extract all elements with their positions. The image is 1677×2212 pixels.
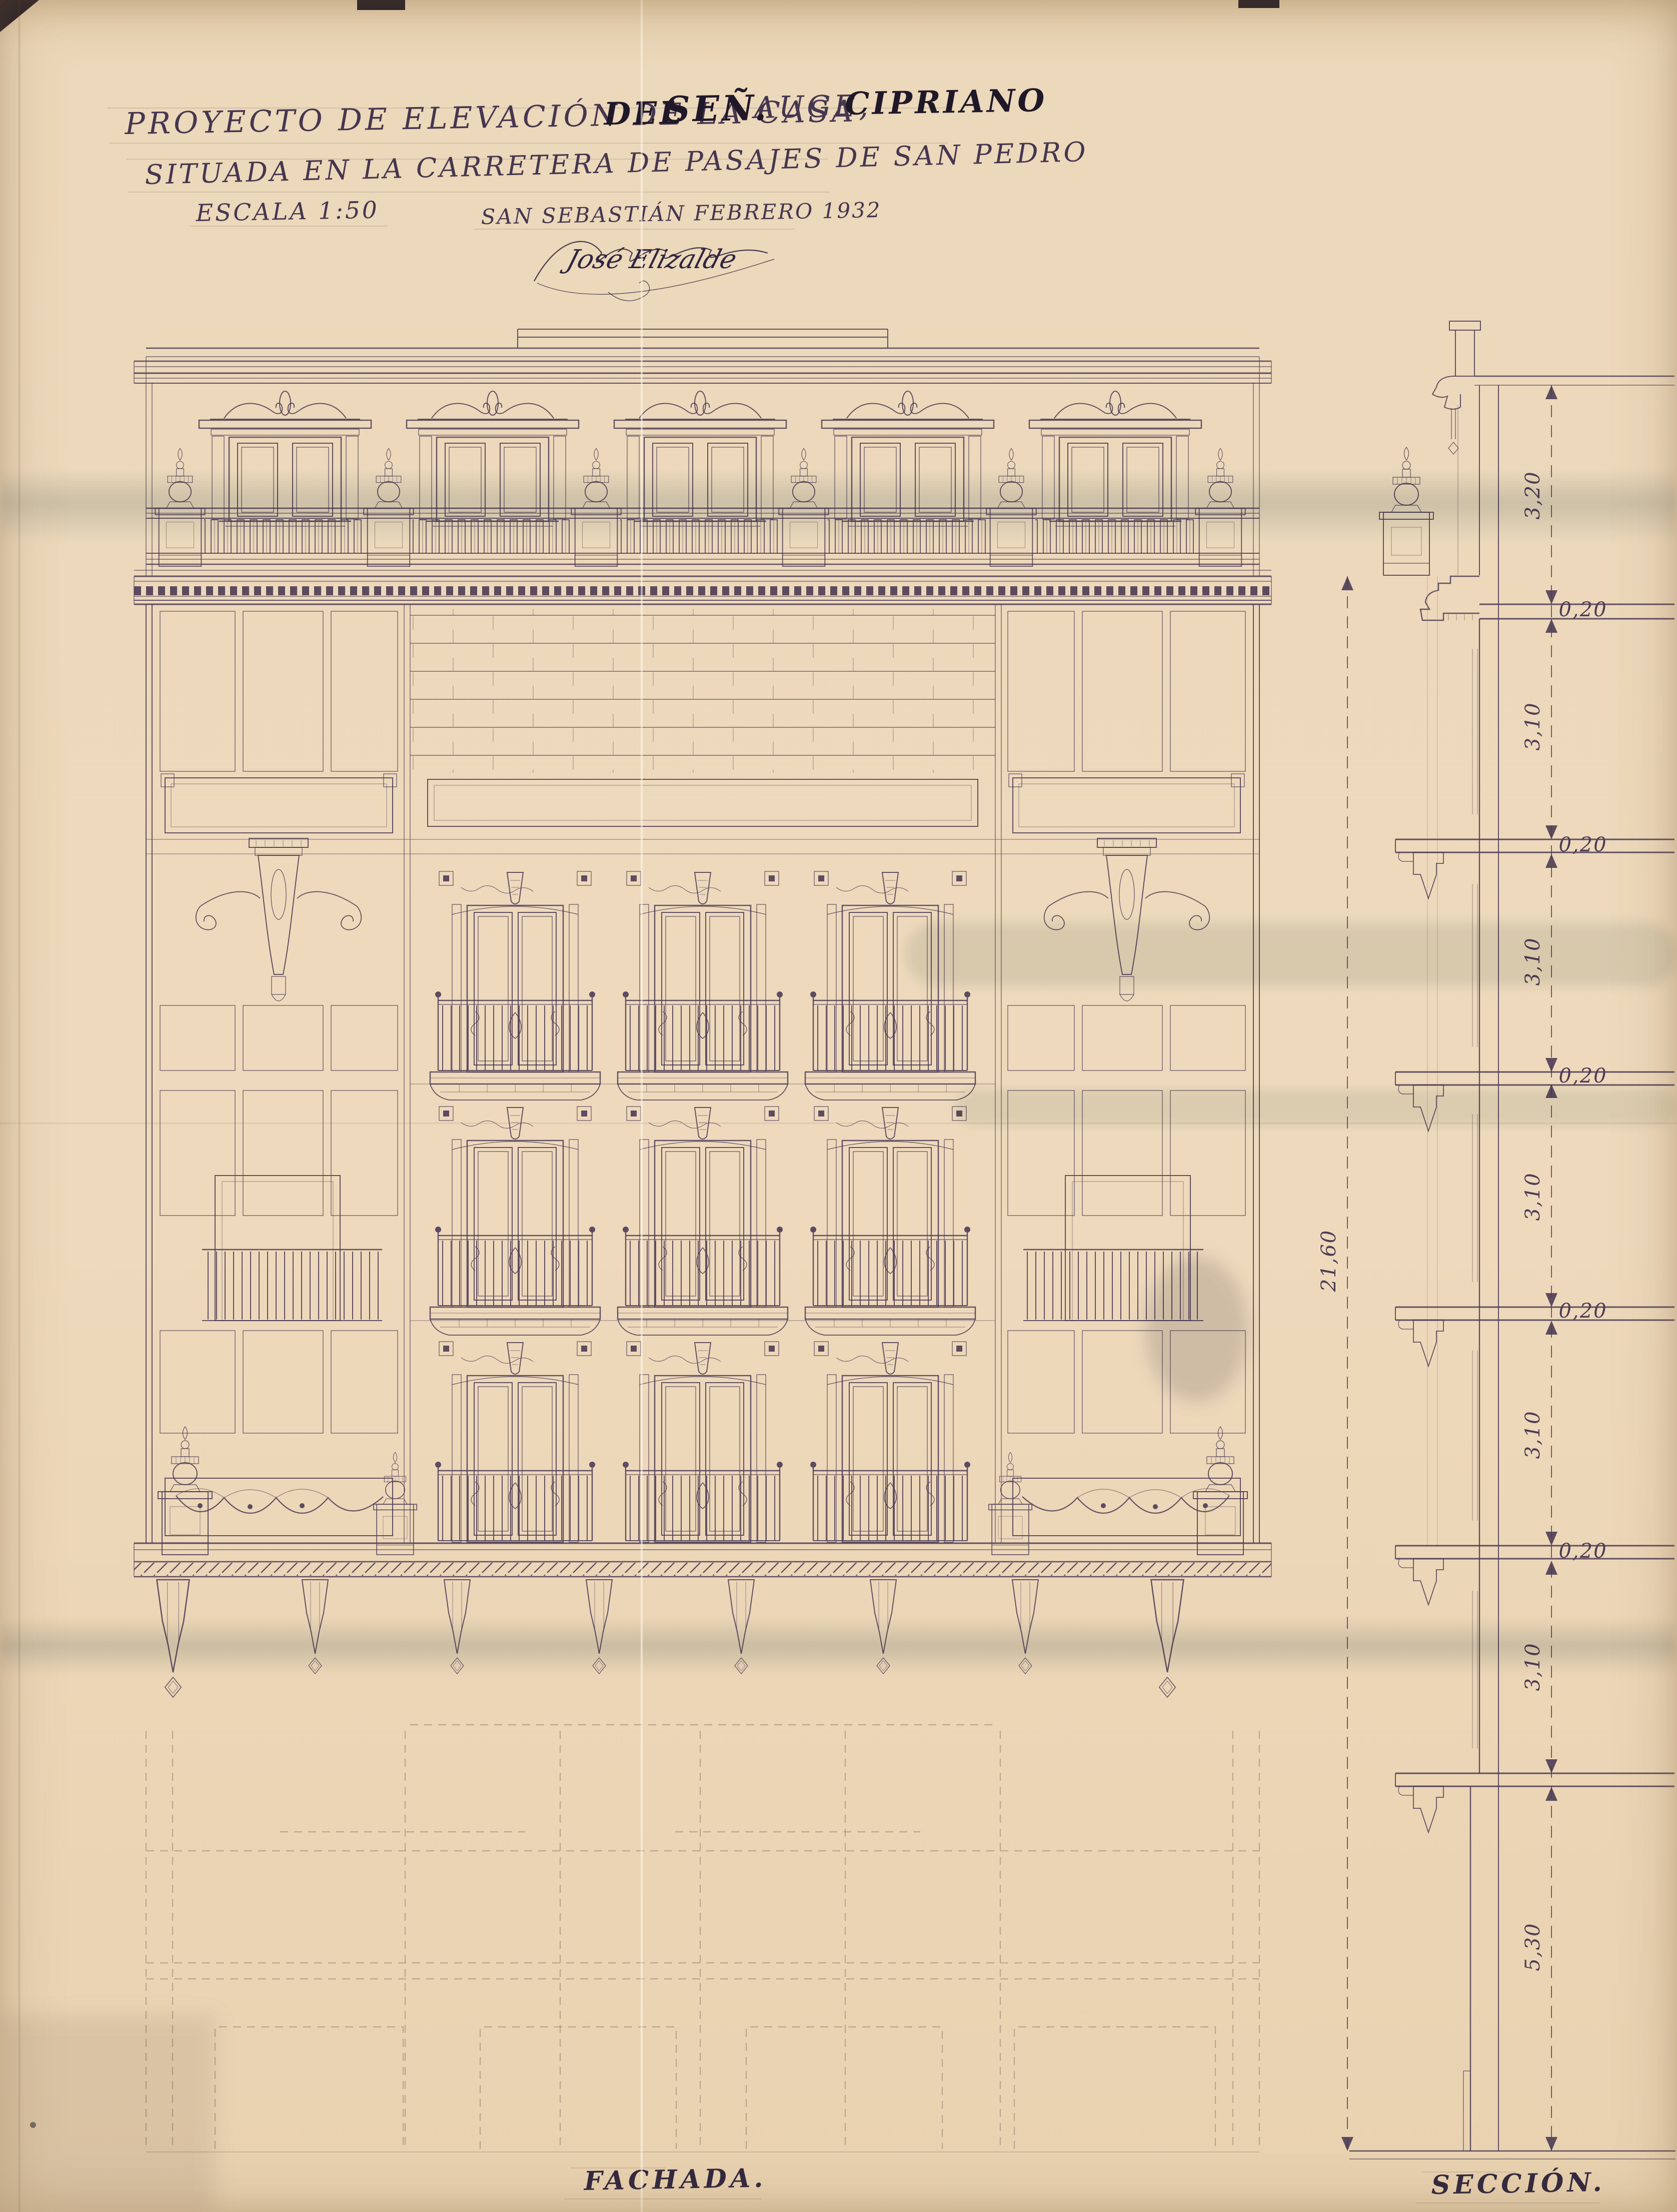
section-main-cornice bbox=[1420, 576, 1674, 620]
corbel-bracket bbox=[302, 1580, 328, 1674]
section-drawing: 3,20 0,20 3,10 0,20 3,10 0,20 3,10 0,20 … bbox=[1317, 321, 1675, 2159]
place-date: SAN SEBASTIÁN FEBRERO 1932 bbox=[481, 197, 882, 229]
dormer-window bbox=[614, 391, 786, 526]
title-block: PROYECTO DE ELEVACIÓN DE LA CASA DEL SEÑ… bbox=[108, 82, 1088, 301]
roof-balustrade bbox=[134, 448, 1271, 570]
dimension-label: 3,10 bbox=[1521, 1410, 1544, 1459]
section-attic-wall bbox=[1479, 385, 1498, 619]
section-label: SECCIÓN. bbox=[1431, 2166, 1605, 2200]
dormer-window bbox=[199, 391, 371, 526]
bay-window-module bbox=[435, 1342, 595, 1542]
bay-window-module bbox=[810, 1107, 970, 1307]
balustrade-urn bbox=[155, 448, 205, 566]
corbel-bracket bbox=[728, 1580, 754, 1674]
balustrade-urn bbox=[364, 448, 413, 566]
balcony-slab bbox=[430, 1307, 600, 1335]
bay-window-module bbox=[810, 1342, 970, 1542]
main-cornice bbox=[134, 576, 1271, 604]
top-floor-wall bbox=[410, 609, 995, 826]
balcony-slab bbox=[805, 1307, 975, 1335]
signature-name: José Elizalde bbox=[559, 244, 741, 275]
corbel-bracket bbox=[157, 1580, 190, 1697]
corbel-course bbox=[157, 1580, 1184, 1697]
corner-artifact bbox=[0, 0, 39, 32]
balcony-slab bbox=[430, 1072, 600, 1100]
string-course bbox=[146, 839, 1259, 854]
balcony-slab bbox=[805, 1072, 975, 1100]
balcony-slab bbox=[618, 1072, 788, 1100]
dimension-label: 3,10 bbox=[1521, 937, 1544, 985]
dimension-label: 0,20 bbox=[1558, 1064, 1607, 1087]
left-pier-decoration bbox=[160, 611, 398, 1536]
roof-cornice bbox=[134, 361, 1271, 383]
facade-elevation bbox=[134, 329, 1271, 2152]
corbel-bracket bbox=[1151, 1580, 1184, 1697]
dimension-label: 3,10 bbox=[1521, 1172, 1544, 1221]
corbel-bracket bbox=[444, 1580, 470, 1674]
bay-window-module bbox=[435, 871, 595, 1072]
balustrade-urn bbox=[571, 448, 621, 566]
blueprint-sheet: PROYECTO DE ELEVACIÓN DE LA CASA DEL SEÑ… bbox=[0, 0, 1677, 2212]
corbel-bracket bbox=[1012, 1580, 1038, 1674]
parapet bbox=[146, 329, 1259, 357]
dimension-chain: 3,20 0,20 3,10 0,20 3,10 0,20 3,10 0,20 … bbox=[1521, 385, 1607, 2151]
edge-artifact bbox=[1238, 0, 1279, 8]
window-bays bbox=[430, 871, 975, 1542]
dimension-label: 3,10 bbox=[1521, 1642, 1544, 1691]
floor-slab bbox=[1395, 1546, 1674, 1605]
dimension-label: 3,20 bbox=[1521, 471, 1544, 519]
speck-artifact bbox=[30, 2122, 36, 2128]
dormer-window bbox=[822, 391, 994, 526]
section-roof bbox=[1432, 321, 1674, 454]
dimension-label: 0,20 bbox=[1558, 833, 1607, 856]
total-height-label: 21,60 bbox=[1317, 1230, 1340, 1293]
drawing-captions: FACHADA. SECCIÓN. bbox=[564, 2163, 1605, 2203]
dimension-label: 0,20 bbox=[1558, 1540, 1607, 1563]
floor-slab bbox=[1395, 1773, 1674, 1832]
section-balustrade-urn bbox=[1379, 447, 1433, 575]
first-floor-balcony-band bbox=[134, 1543, 1271, 1577]
scale-note: ESCALA 1:50 bbox=[195, 197, 379, 227]
bay-window-module bbox=[810, 871, 970, 1072]
balustrade-urn bbox=[779, 448, 828, 566]
architect-signature: José Elizalde bbox=[534, 242, 774, 301]
section-plinth bbox=[1463, 2071, 1470, 2151]
dimension-label: 0,20 bbox=[1558, 1300, 1607, 1323]
balustrade-urn bbox=[986, 448, 1036, 566]
attic-dormers bbox=[199, 391, 1201, 526]
dormer-window bbox=[407, 391, 579, 526]
drawing-canvas: PROYECTO DE ELEVACIÓN DE LA CASA DEL SEÑ… bbox=[0, 0, 1677, 2212]
facade-label: FACHADA. bbox=[583, 2163, 767, 2196]
right-pier-decoration bbox=[1008, 611, 1245, 1536]
corbel-bracket bbox=[870, 1580, 896, 1674]
edge-artifact bbox=[357, 0, 405, 10]
title-line2: SITUADA EN LA CARRETERA DE PASAJES DE SA… bbox=[145, 136, 1089, 191]
section-window-reveals bbox=[1472, 649, 1477, 1748]
bay-window-module bbox=[623, 1107, 783, 1307]
ground-floor-sketch bbox=[146, 1725, 1259, 2149]
corbel-bracket bbox=[586, 1580, 612, 1674]
section-guide-lines bbox=[1427, 576, 1437, 1546]
dormer-window bbox=[1029, 391, 1201, 526]
bay-window-module bbox=[435, 1107, 595, 1307]
bay-window-module bbox=[623, 1342, 783, 1542]
dimension-label: 0,20 bbox=[1558, 598, 1607, 621]
overall-height-dimension: 21,60 bbox=[1317, 576, 1353, 2151]
bay-window-module bbox=[623, 871, 783, 1072]
title-line1-cipriano: CIPRIANO bbox=[845, 82, 1047, 122]
dimension-label: 5,30 bbox=[1521, 1922, 1544, 1971]
balcony-slab bbox=[618, 1307, 788, 1335]
dimension-label: 3,10 bbox=[1521, 702, 1544, 750]
balustrade-urn bbox=[1195, 448, 1245, 566]
